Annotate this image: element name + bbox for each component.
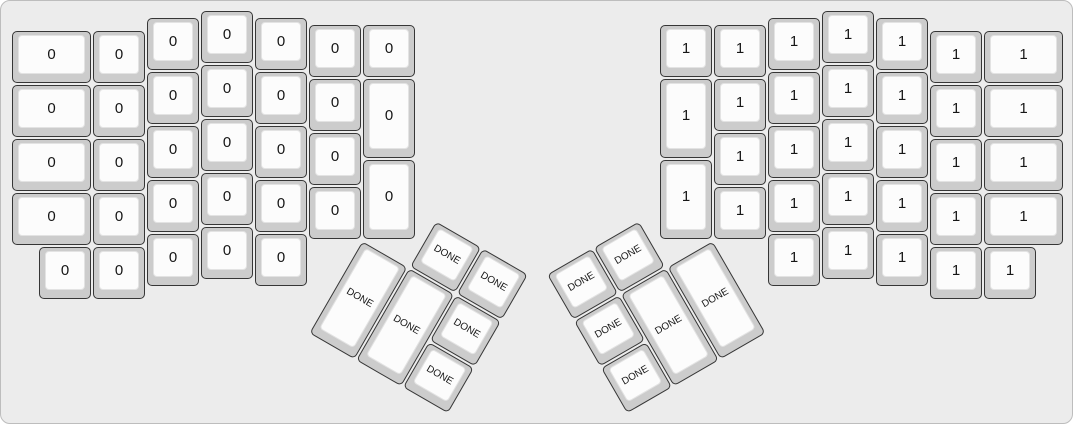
key-0[interactable]: 0 [201,173,253,225]
key-label: 1 [682,41,690,56]
key-1[interactable]: 1 [768,234,820,286]
keycap-top: 1 [882,22,922,61]
key-label: 1 [1019,209,1027,224]
keycap-top: 0 [99,89,139,128]
key-label: 0 [223,243,231,258]
keycap-top: 1 [720,83,760,122]
key-label: 0 [115,101,123,116]
keycap-top: DONE [420,228,474,282]
key-label: 0 [169,88,177,103]
key-0[interactable]: 0 [93,193,145,245]
key-0[interactable]: 0 [201,11,253,63]
key-0[interactable]: 0 [12,85,91,137]
key-label: 1 [952,209,960,224]
key-label: 1 [898,250,906,265]
keycap-top: 0 [99,251,139,290]
key-label: 0 [331,41,339,56]
keycap-top: 1 [666,83,706,149]
key-label: 0 [47,155,55,170]
keycap-top: 1 [936,89,976,128]
key-0[interactable]: 0 [255,18,307,70]
key-label: 0 [47,209,55,224]
key-label: 1 [844,189,852,204]
key-1[interactable]: 1 [984,85,1063,137]
key-0[interactable]: 0 [201,119,253,171]
key-label: DONE [479,270,509,293]
key-1[interactable]: 1 [822,11,874,63]
key-label: 0 [223,189,231,204]
keycap-top: 0 [207,177,247,216]
keycap-top: 1 [774,238,814,277]
keycap-top: 0 [99,35,139,74]
keycap-top: 1 [828,69,868,108]
key-1[interactable]: 1 [822,119,874,171]
key-1[interactable]: 1 [876,18,928,70]
keycap-top: 0 [18,197,85,236]
keycap-top: DONE [554,255,608,309]
key-1[interactable]: 1 [876,126,928,178]
key-0[interactable]: 0 [93,85,145,137]
key-0[interactable]: 0 [309,25,361,77]
key-0[interactable]: 0 [255,180,307,232]
key-label: DONE [620,363,650,386]
keycap-top: 1 [828,123,868,162]
key-1[interactable]: 1 [930,193,982,245]
key-label: DONE [432,243,462,266]
key-label: 1 [898,34,906,49]
key-label: 0 [169,34,177,49]
keycap-top: 1 [720,191,760,230]
key-0[interactable]: 0 [363,79,415,158]
key-0[interactable]: 0 [201,227,253,279]
keycap-top: 1 [882,76,922,115]
keycap-top: 0 [315,137,355,176]
key-label: 1 [1019,101,1027,116]
keycap-top: 1 [666,29,706,68]
keycap-top: 0 [315,83,355,122]
keyboard-layout-stage: 0000000000000000000000000000000011111111… [0,0,1073,424]
key-label: DONE [425,363,455,386]
keycap-top: 0 [153,22,193,61]
key-0[interactable]: 0 [147,180,199,232]
keycap-top: 1 [990,89,1057,128]
keycap-top: 0 [261,130,301,169]
key-label: 1 [898,196,906,211]
keycap-top: 0 [261,22,301,61]
key-label: 1 [682,108,690,123]
keycap-top: 1 [990,35,1057,74]
key-label: 0 [61,263,69,278]
keycap-top: 1 [666,164,706,230]
key-0[interactable]: 0 [363,25,415,77]
key-label: 0 [277,88,285,103]
key-1[interactable]: 1 [876,180,928,232]
key-label: 1 [898,88,906,103]
keycap-top: 1 [774,130,814,169]
key-0[interactable]: 0 [147,126,199,178]
key-0[interactable]: 0 [39,247,91,299]
keycap-top: 0 [261,76,301,115]
key-label: 0 [385,108,393,123]
key-label: DONE [345,286,375,309]
key-1[interactable]: 1 [822,227,874,279]
key-label: 0 [223,27,231,42]
key-label: DONE [700,286,730,309]
keycap-top: 0 [153,184,193,223]
keycap-top: DONE [467,255,521,309]
key-label: 0 [331,95,339,110]
key-1[interactable]: 1 [714,79,766,131]
key-label: 0 [385,41,393,56]
key-label: 0 [277,34,285,49]
key-label: 1 [736,203,744,218]
keycap-top: 1 [882,238,922,277]
key-label: 0 [115,263,123,278]
key-label: 1 [1019,155,1027,170]
key-0[interactable]: 0 [201,65,253,117]
keycap-top: 1 [990,143,1057,182]
keycap-top: DONE [601,228,655,282]
key-label: 1 [790,142,798,157]
keycap-top: 1 [936,35,976,74]
key-0[interactable]: 0 [12,193,91,245]
keycap-top: 0 [261,184,301,223]
keycap-top: 1 [828,231,868,270]
key-label: DONE [566,270,596,293]
key-0[interactable]: 0 [309,133,361,185]
key-1[interactable]: 1 [768,126,820,178]
keyboard-canvas: 0000000000000000000000000000000011111111… [0,0,1073,424]
key-label: DONE [391,313,421,336]
key-0[interactable]: 0 [363,160,415,239]
key-1[interactable]: 1 [930,31,982,83]
key-1[interactable]: 1 [768,72,820,124]
key-label: 0 [277,250,285,265]
key-label: 1 [844,243,852,258]
key-label: 1 [790,196,798,211]
keycap-top: 0 [45,251,85,290]
key-label: 1 [952,47,960,62]
key-0[interactable]: 0 [309,187,361,239]
keycap-top: 0 [207,69,247,108]
key-label: 0 [223,135,231,150]
keycap-top: 0 [369,83,409,149]
key-1[interactable]: 1 [930,139,982,191]
key-0[interactable]: 0 [309,79,361,131]
key-label: 1 [844,135,852,150]
key-label: 0 [47,101,55,116]
key-1[interactable]: 1 [714,187,766,239]
keycap-top: 1 [882,130,922,169]
key-label: 0 [331,203,339,218]
key-label: 0 [169,142,177,157]
key-label: 0 [47,47,55,62]
keycap-top: 1 [990,197,1057,236]
key-label: DONE [613,243,643,266]
keycap-top: 1 [720,137,760,176]
keycap-top: 0 [207,123,247,162]
key-label: DONE [452,317,482,340]
key-0[interactable]: 0 [255,234,307,286]
key-1[interactable]: 1 [984,31,1063,83]
key-1[interactable]: 1 [876,72,928,124]
key-1[interactable]: 1 [984,139,1063,191]
keycap-top: 1 [936,251,976,290]
key-0[interactable]: 0 [147,72,199,124]
key-label: 1 [952,101,960,116]
keycap-top: 0 [369,164,409,230]
keycap-top: 0 [153,130,193,169]
key-label: 1 [1019,47,1027,62]
keycap-top: 1 [774,22,814,61]
keycap-top: 1 [828,177,868,216]
keycap-top: 1 [936,197,976,236]
key-1[interactable]: 1 [984,247,1036,299]
key-label: 0 [169,196,177,211]
key-label: 1 [844,27,852,42]
key-0[interactable]: 0 [255,126,307,178]
key-label: 1 [952,155,960,170]
key-0[interactable]: 0 [147,18,199,70]
key-label: 0 [277,142,285,157]
key-label: 0 [115,209,123,224]
keycap-top: 0 [18,35,85,74]
key-label: 1 [1006,263,1014,278]
key-label: 1 [844,81,852,96]
key-0[interactable]: 0 [93,139,145,191]
key-label: 1 [898,142,906,157]
keycap-top: 1 [882,184,922,223]
keycap-top: 1 [774,76,814,115]
keycap-top: 0 [315,29,355,68]
keycap-top: 0 [18,89,85,128]
keycap-top: 0 [207,15,247,54]
keycap-top: 1 [774,184,814,223]
key-0[interactable]: 0 [147,234,199,286]
keycap-top: 0 [315,191,355,230]
key-label: 1 [790,250,798,265]
key-label: DONE [654,313,684,336]
key-1[interactable]: 1 [660,79,712,158]
key-1[interactable]: 1 [714,25,766,77]
key-1[interactable]: 1 [660,160,712,239]
key-0[interactable]: 0 [93,247,145,299]
keycap-top: 1 [990,251,1030,290]
key-label: 1 [736,149,744,164]
key-1[interactable]: 1 [876,234,928,286]
key-label: 1 [736,95,744,110]
keycap-top: 0 [18,143,85,182]
key-0[interactable]: 0 [93,31,145,83]
key-label: 0 [385,189,393,204]
key-label: 0 [331,149,339,164]
keycap-top: 1 [720,29,760,68]
key-label: 0 [115,155,123,170]
key-label: 1 [682,189,690,204]
keycap-top: 0 [369,29,409,68]
key-1[interactable]: 1 [768,18,820,70]
keycap-top: 0 [261,238,301,277]
key-label: 1 [736,41,744,56]
keycap-top: 1 [828,15,868,54]
keycap-top: 0 [153,238,193,277]
key-label: DONE [593,317,623,340]
key-1[interactable]: 1 [822,65,874,117]
keycap-top: 0 [207,231,247,270]
key-1[interactable]: 1 [984,193,1063,245]
key-label: 1 [790,88,798,103]
key-1[interactable]: 1 [930,247,982,299]
keycap-top: 1 [936,143,976,182]
key-label: 1 [790,34,798,49]
key-1[interactable]: 1 [930,85,982,137]
key-1[interactable]: 1 [822,173,874,225]
keycap-top: 0 [99,197,139,236]
key-0[interactable]: 0 [12,31,91,83]
key-label: 1 [952,263,960,278]
key-label: 0 [277,196,285,211]
key-1[interactable]: 1 [768,180,820,232]
keycap-top: 0 [99,143,139,182]
key-1[interactable]: 1 [714,133,766,185]
key-0[interactable]: 0 [12,139,91,191]
key-label: 0 [223,81,231,96]
key-label: 0 [115,47,123,62]
key-1[interactable]: 1 [660,25,712,77]
key-label: 0 [169,250,177,265]
keycap-top: 0 [153,76,193,115]
key-0[interactable]: 0 [255,72,307,124]
